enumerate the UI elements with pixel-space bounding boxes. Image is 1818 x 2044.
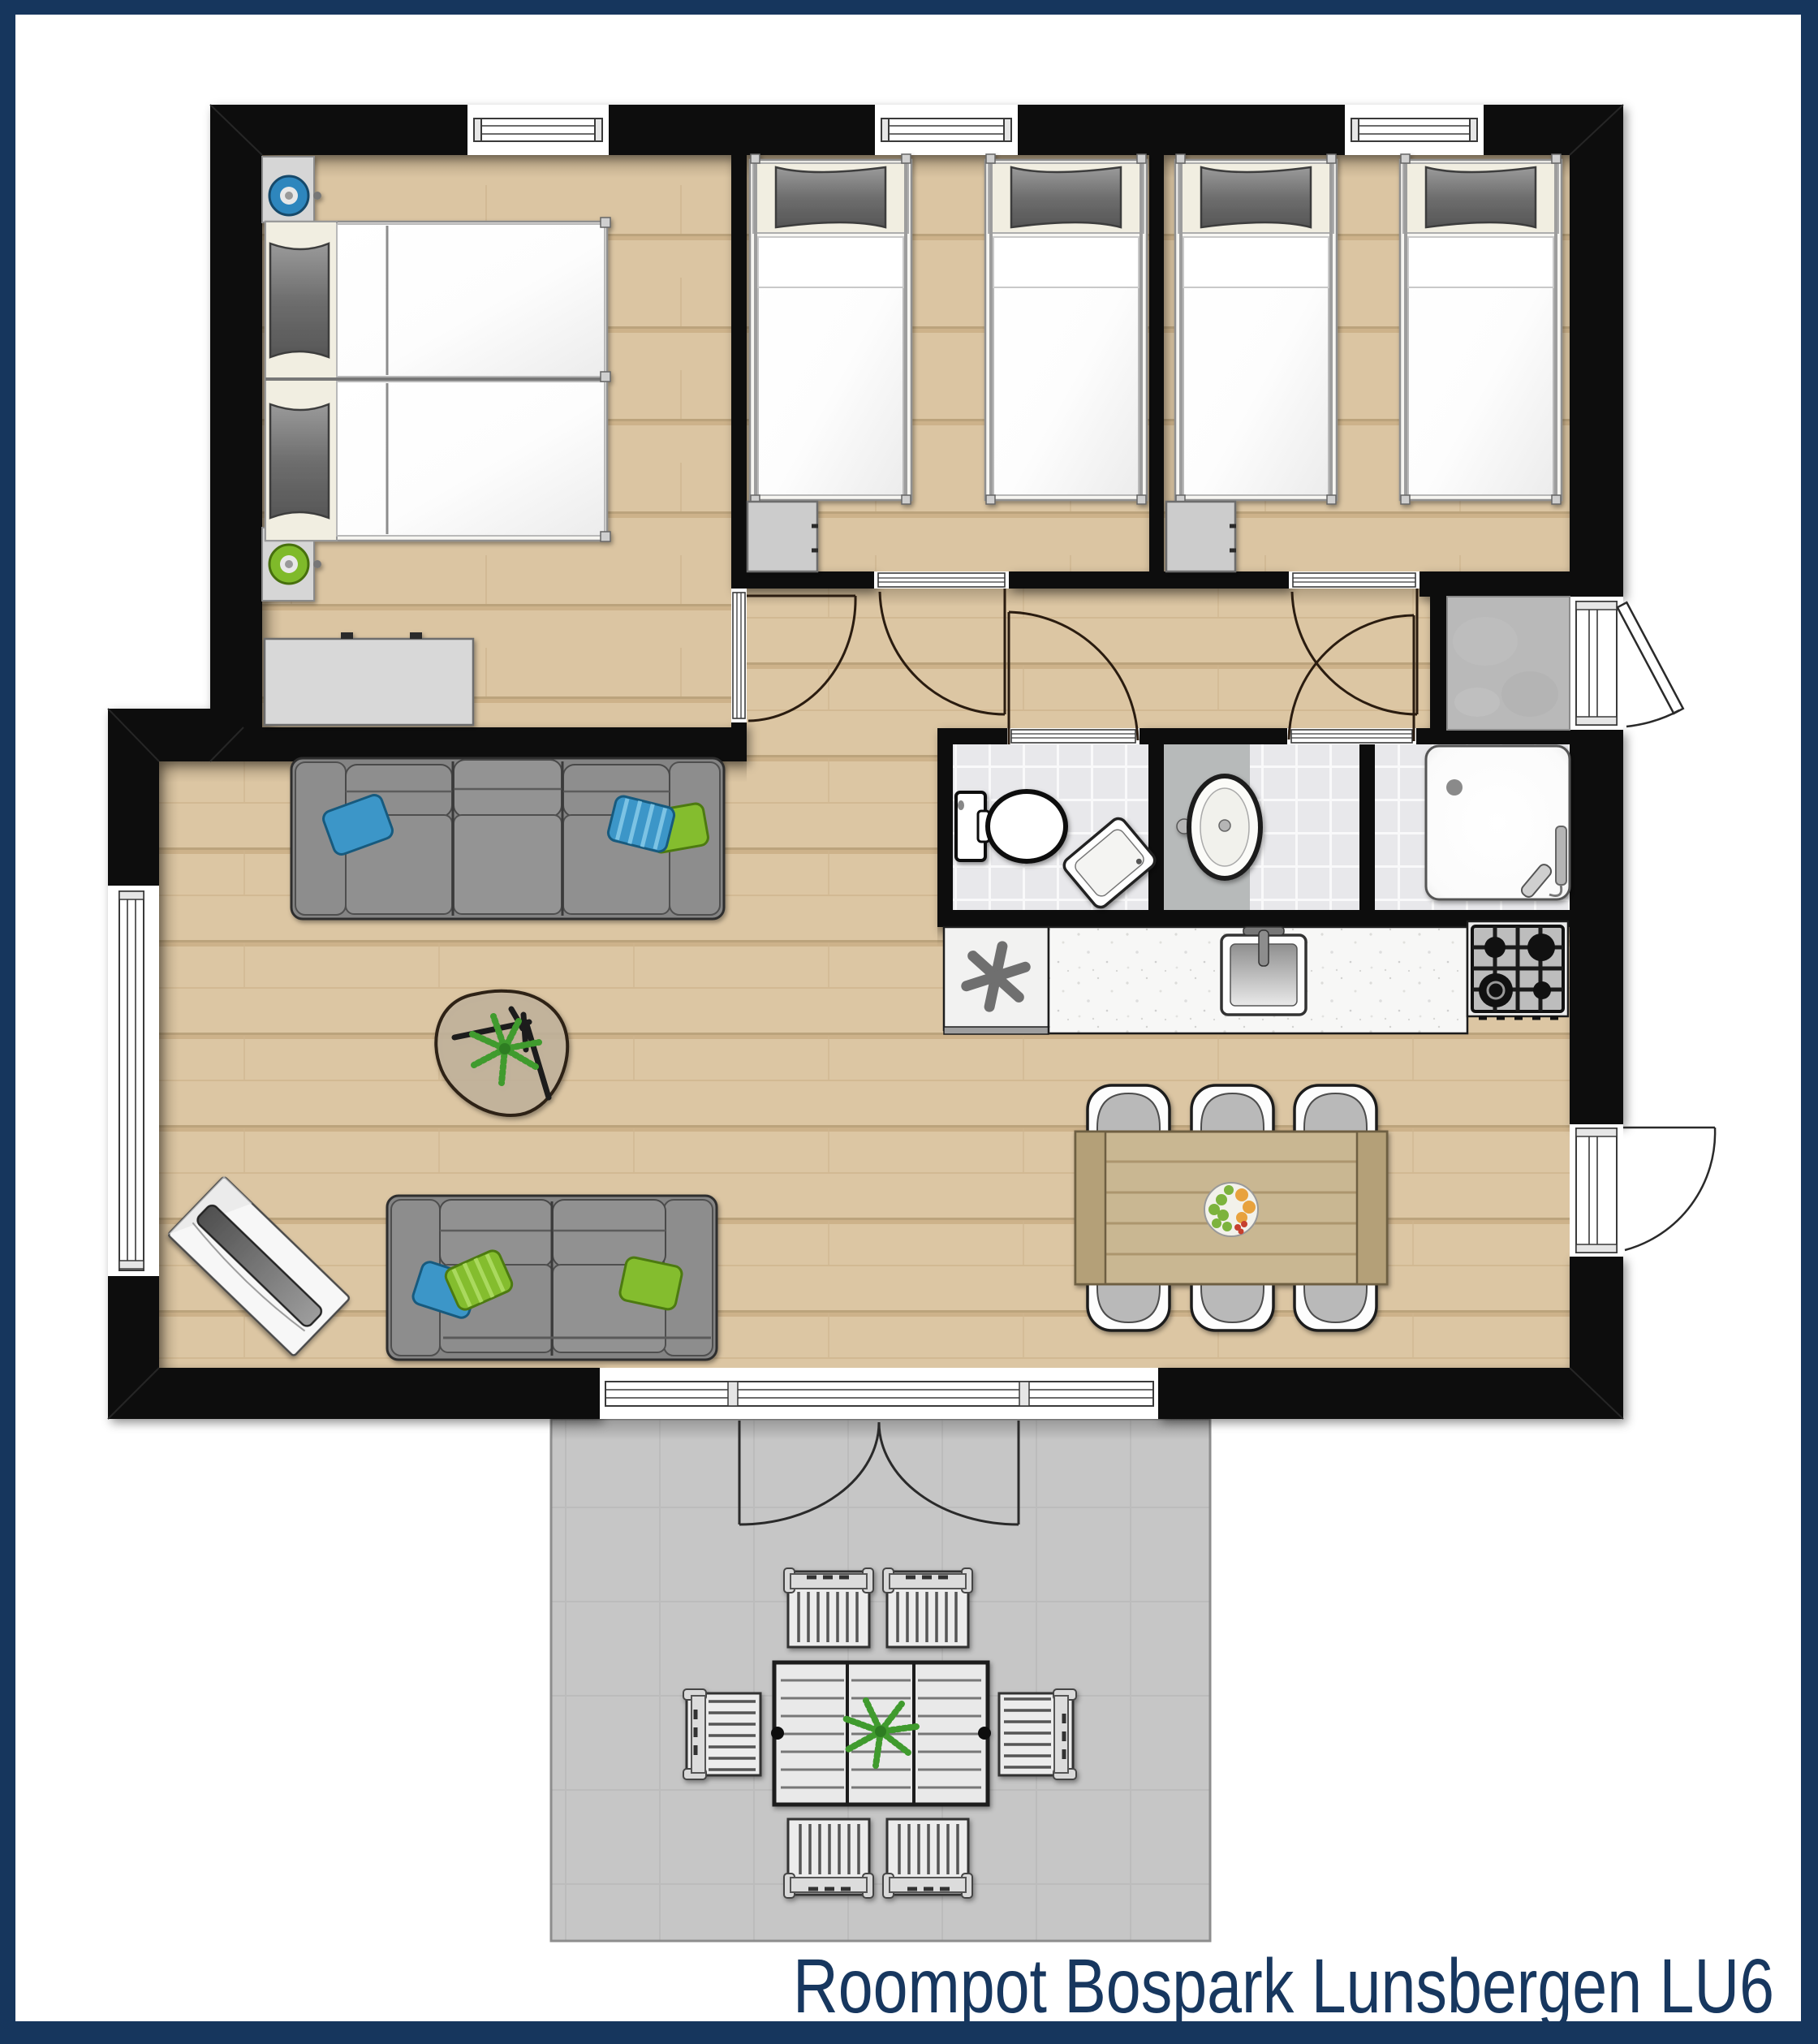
svg-text:Roompot Bospark Lunsbergen LU6: Roompot Bospark Lunsbergen LU6 bbox=[793, 1943, 1774, 2029]
